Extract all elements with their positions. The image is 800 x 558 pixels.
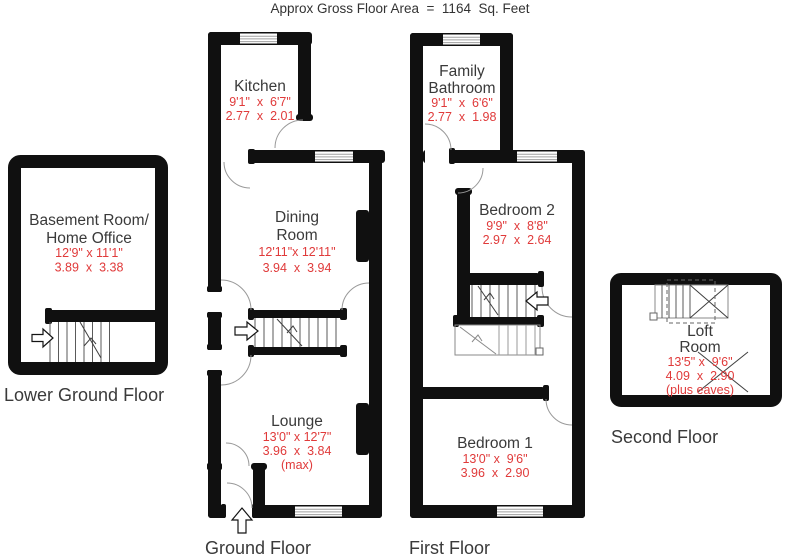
kitchen-dims-metric: 2.77 x 2.01 xyxy=(226,109,295,123)
bedroom1-dims-metric: 3.96 x 2.90 xyxy=(461,466,530,480)
bedroom1-dims-imperial: 13'0" x 9'6" xyxy=(462,452,527,466)
lounge-dims-metric: 3.96 x 3.84 xyxy=(263,444,332,458)
gf-dining-chimney-breast xyxy=(356,210,369,262)
lower-ground-floor-plan: Basement Room/ Home Office 12'9" x 11'1"… xyxy=(0,150,210,382)
bedroom2-dims-metric: 2.97 x 2.64 xyxy=(483,233,552,247)
ff-bedroom1-window xyxy=(497,507,543,517)
gf-dining-window xyxy=(315,152,353,162)
bedroom1-label: Bedroom 1 xyxy=(457,435,533,452)
bedroom2-dims-imperial: 9'9" x 8'8" xyxy=(486,219,548,233)
ff-stairs-arrow-icon xyxy=(526,292,548,310)
basement-room-label-line2: Home Office xyxy=(46,230,132,247)
bathroom-dims-metric: 2.77 x 1.98 xyxy=(428,110,497,124)
ff-bathroom-window xyxy=(443,35,480,45)
loft-label-line2: Room xyxy=(679,339,720,356)
ff-door-openings xyxy=(425,148,455,164)
basement-dims-imperial: 12'9" x 11'1" xyxy=(55,246,123,260)
gf-lounge-window xyxy=(295,507,342,517)
bedroom2-label: Bedroom 2 xyxy=(479,202,555,219)
loft-dims-note: (plus eaves) xyxy=(666,383,734,397)
second-floor-label: Second Floor xyxy=(611,427,718,448)
dining-dims-metric: 3.94 x 3.94 xyxy=(263,261,332,275)
dining-label-line2: Room xyxy=(276,227,317,244)
bathroom-label-line2: Bathroom xyxy=(428,80,495,97)
lower-ground-floor-label: Lower Ground Floor xyxy=(4,385,164,406)
ground-floor-label: Ground Floor xyxy=(205,538,311,558)
basement-room-label-line1: Basement Room/ xyxy=(29,212,149,229)
gf-kitchen-window xyxy=(240,34,277,44)
dining-dims-imperial: 12'11"x 12'11" xyxy=(258,245,335,259)
floorplan-page: Approx Gross Floor Area = 1164 Sq. Feet … xyxy=(0,0,800,558)
kitchen-label: Kitchen xyxy=(234,78,286,95)
lounge-dims-note: (max) xyxy=(281,458,313,472)
ground-floor-plan: Kitchen 9'1" x 6'7" 2.77 x 2.01 Dining R… xyxy=(205,28,400,540)
loft-dims-metric: 4.09 x 2.90 xyxy=(666,369,735,383)
basement-dims-metric: 3.89 x 3.38 xyxy=(55,261,124,275)
lgf-inner-wall-cap xyxy=(45,308,52,324)
second-floor-plan: Loft Room 13'5" x 9'6" 4.09 x 2.90 (plus… xyxy=(605,265,795,415)
loft-dims-imperial: 13'5" x 9'6" xyxy=(667,355,732,369)
lounge-label: Lounge xyxy=(271,413,323,430)
lounge-dims-imperial: 13'0" x 12'7" xyxy=(263,430,332,444)
ff-bedroom2-window xyxy=(517,152,557,162)
kitchen-dims-imperial: 9'1" x 6'7" xyxy=(229,95,291,109)
bathroom-label-line1: Family xyxy=(439,63,485,80)
first-floor-label: First Floor xyxy=(409,538,490,558)
gf-staircase xyxy=(255,318,336,347)
bathroom-dims-imperial: 9'1" x 6'6" xyxy=(431,96,493,110)
dining-label-line1: Dining xyxy=(275,209,319,226)
gf-lounge-chimney-breast xyxy=(356,403,369,455)
loft-label-line1: Loft xyxy=(687,323,714,340)
lgf-inner-wall xyxy=(47,310,157,322)
first-floor-plan: Family Bathroom 9'1" x 6'6" 2.77 x 1.98 … xyxy=(400,28,600,540)
page-title: Approx Gross Floor Area = 1164 Sq. Feet xyxy=(0,1,800,16)
ff-staircase-lower xyxy=(455,325,543,355)
